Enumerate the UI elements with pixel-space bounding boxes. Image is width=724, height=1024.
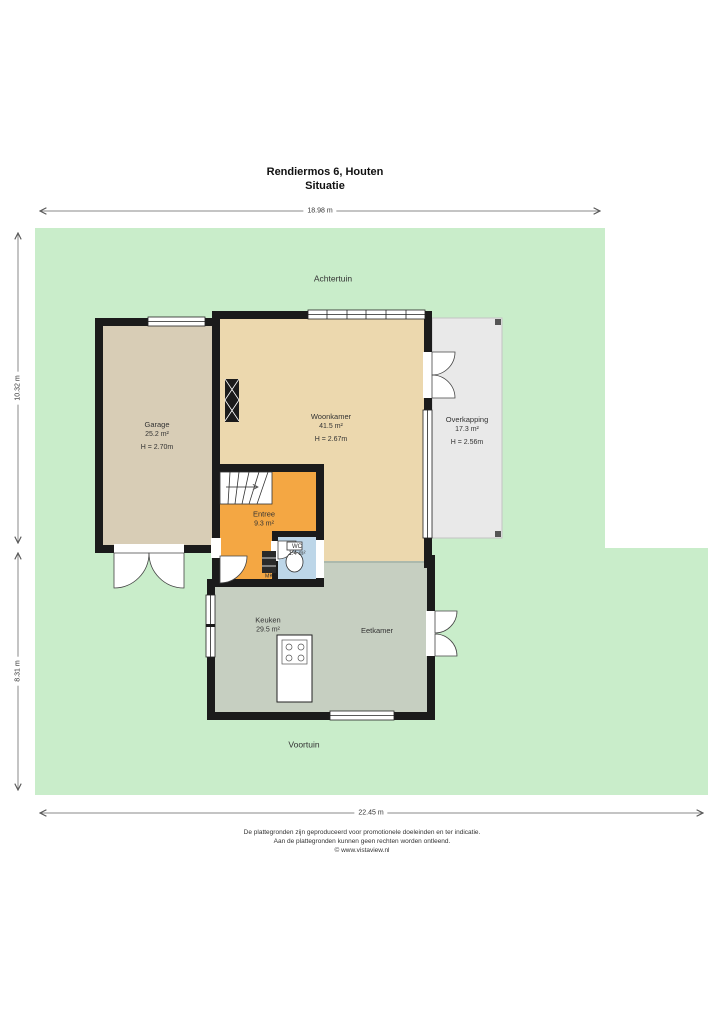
garden-front-label: Voortuin [288,739,319,750]
dimension-bottom: 22.45 m [354,808,387,817]
dimension-left-lower: 8.31 m [13,656,22,685]
floorplan-drawing [0,0,724,1024]
woonkamer-label: Woonkamer 41.5 m² H = 2.67m [311,412,351,444]
keuken-area: 29.5 m² [255,625,280,634]
woonkamer-right-window [423,410,432,538]
wc-area: 1.4 m² [288,551,305,558]
keuken-label: Keuken 29.5 m² [255,616,280,635]
eetkamer-name: Eetkamer [361,626,393,636]
overkapping-name: Overkapping [446,415,489,425]
wc-label: WC 1.4 m² [288,544,305,558]
woonkamer-top-window-band [308,310,425,319]
woonkamer-height: H = 2.67m [311,435,351,444]
entree-name: Entree [253,510,275,520]
garage-label: Garage 25.2 m² H = 2.70m [141,420,174,452]
entree-area: 9.3 m² [253,519,275,528]
entree-label: Entree 9.3 m² [253,510,275,529]
meter-cupboard [262,551,276,573]
footer-disclaimer-1: De plattegronden zijn geproduceerd voor … [0,830,724,837]
eetkamer-bottom-window [330,711,394,720]
garage-name: Garage [141,420,174,430]
woonkamer-name: Woonkamer [311,412,351,422]
footer-disclaimer-2: Aan de plattegronden kunnen geen rechten… [0,839,724,846]
overkapping-area: 17.3 m² [446,425,489,434]
fireplace-shaft [225,379,239,422]
garage-top-window [148,317,205,326]
overkapping-post-top [495,319,501,325]
passage-opening [316,540,324,578]
garden-back-label: Achtertuin [314,273,352,284]
footer-copyright: © www.vistaview.nl [0,848,724,855]
overkapping-post-bottom [495,531,501,537]
woonkamer-area: 41.5 m² [311,422,351,431]
dimension-left-upper: 10.32 m [13,371,22,404]
overkapping-height: H = 2.56m [446,438,489,447]
garage-height: H = 2.70m [141,443,174,452]
keuken-name: Keuken [255,616,280,626]
kitchen-island [277,635,312,702]
keuken-left-windows [206,595,215,657]
overkapping-label: Overkapping 17.3 m² H = 2.56m [446,415,489,447]
floorplan-page: Rendiermos 6, Houten Situatie [0,0,724,1024]
eetkamer-label: Eetkamer [361,626,393,636]
wc-name: WC [288,544,305,551]
garage-area: 25.2 m² [141,430,174,439]
meterkast-label: MK [265,573,273,580]
dimension-top: 18.98 m [303,206,336,215]
stairs [220,472,272,504]
